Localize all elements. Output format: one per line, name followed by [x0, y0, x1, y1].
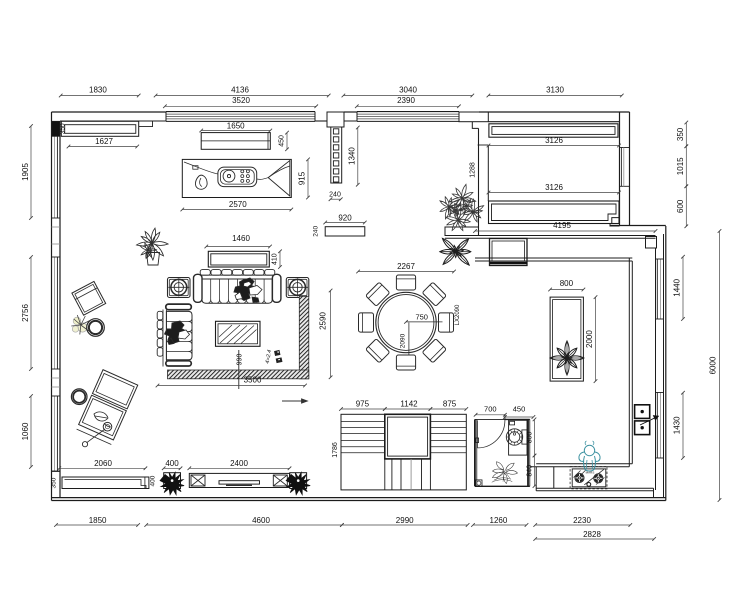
svg-text:4600: 4600 [252, 516, 270, 525]
svg-text:800: 800 [527, 432, 534, 444]
svg-text:2230: 2230 [573, 516, 591, 525]
svg-text:3126: 3126 [545, 183, 563, 192]
svg-text:3040: 3040 [399, 86, 417, 95]
svg-text:1830: 1830 [89, 86, 107, 95]
svg-text:915: 915 [298, 171, 307, 185]
svg-text:800: 800 [560, 279, 574, 288]
svg-text:1015: 1015 [676, 157, 685, 175]
svg-text:2390: 2390 [397, 96, 415, 105]
svg-text:1142: 1142 [400, 400, 418, 409]
svg-text:2267: 2267 [397, 262, 415, 271]
svg-text:450: 450 [279, 135, 286, 147]
svg-text:2590: 2590 [319, 312, 328, 330]
svg-text:1260: 1260 [490, 516, 508, 525]
svg-text:400: 400 [150, 475, 157, 486]
svg-text:875: 875 [443, 400, 457, 409]
svg-text:2060: 2060 [94, 459, 112, 468]
svg-text:410: 410 [272, 253, 279, 265]
svg-text:1340: 1340 [347, 147, 356, 165]
svg-text:350: 350 [60, 123, 67, 134]
svg-text:3130: 3130 [546, 86, 564, 95]
svg-text:975: 975 [356, 400, 370, 409]
svg-text:1850: 1850 [89, 516, 107, 525]
svg-text:1430: 1430 [673, 416, 682, 434]
svg-text:400: 400 [165, 459, 179, 468]
svg-text:350: 350 [676, 127, 685, 141]
svg-text:840: 840 [527, 465, 534, 477]
svg-text:1786: 1786 [332, 442, 339, 458]
svg-text:990: 990 [237, 354, 244, 366]
svg-text:750: 750 [415, 313, 428, 322]
svg-text:1440: 1440 [673, 278, 682, 296]
svg-text:6000: 6000 [709, 356, 718, 374]
svg-text:1460: 1460 [232, 234, 250, 243]
svg-text:240: 240 [329, 192, 341, 199]
svg-text:LX2090: LX2090 [455, 304, 461, 325]
svg-text:1905: 1905 [21, 163, 30, 181]
svg-text:3520: 3520 [232, 96, 250, 105]
svg-text:4195: 4195 [553, 221, 571, 230]
svg-text:2756: 2756 [21, 304, 30, 322]
svg-text:1627: 1627 [95, 137, 113, 146]
svg-text:1060: 1060 [21, 422, 30, 440]
svg-text:350: 350 [51, 477, 58, 488]
svg-text:2990: 2990 [396, 516, 414, 525]
svg-text:2570: 2570 [229, 200, 247, 209]
svg-text:2090: 2090 [400, 333, 407, 348]
svg-text:920: 920 [338, 214, 352, 223]
svg-text:3126: 3126 [545, 136, 563, 145]
svg-text:700: 700 [484, 405, 497, 414]
svg-text:600: 600 [676, 199, 685, 213]
svg-text:2000: 2000 [585, 330, 594, 348]
svg-text:4136: 4136 [231, 86, 249, 95]
svg-text:3500: 3500 [244, 376, 262, 385]
svg-text:2400: 2400 [230, 459, 248, 468]
svg-text:1650: 1650 [227, 122, 245, 131]
svg-text:1288: 1288 [470, 162, 477, 178]
svg-text:2828: 2828 [583, 530, 601, 539]
svg-text:240: 240 [313, 225, 320, 236]
svg-text:450: 450 [513, 405, 526, 414]
